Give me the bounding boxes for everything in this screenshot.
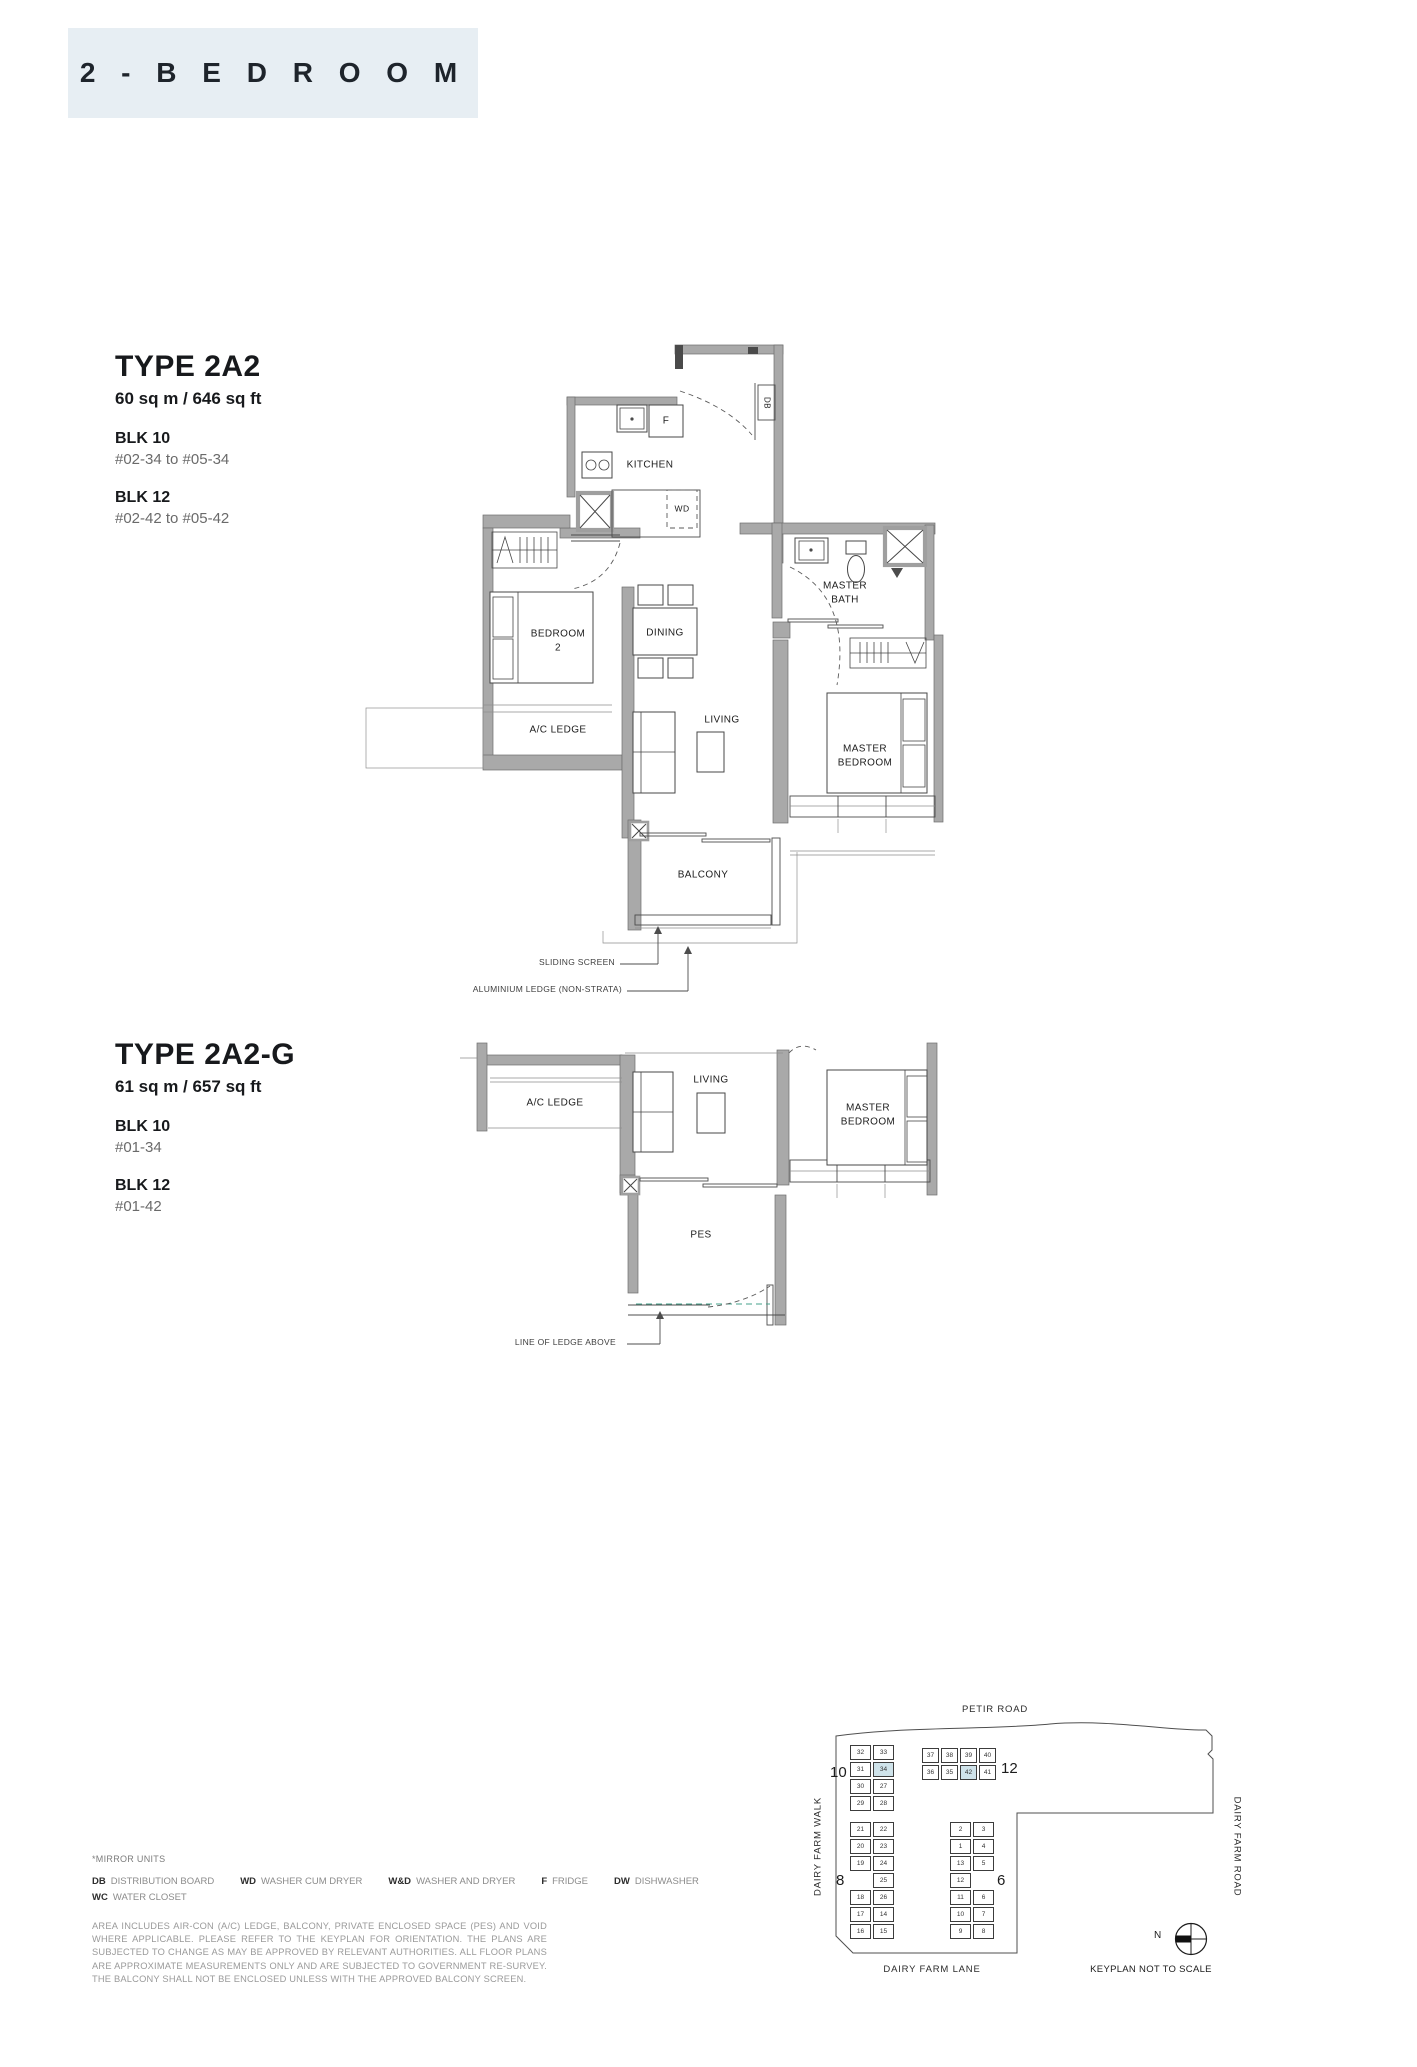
keyplan-unit-35: 35 <box>941 1765 958 1780</box>
label-master-bath: MASTER BATH <box>823 580 867 607</box>
keyplan-unit-row: 1615 <box>850 1924 894 1939</box>
keyplan-unit-16: 16 <box>850 1924 871 1939</box>
label-fridge: F <box>663 414 670 428</box>
keyplan-unit-row: 116 <box>950 1890 994 1905</box>
keyplan-unit-row: 2928 <box>850 1796 894 1811</box>
type-2a2g-info: TYPE 2A2-G 61 sq m / 657 sq ft BLK 10#01… <box>115 1040 385 1215</box>
label-master-bedroom: MASTER BEDROOM <box>838 743 892 770</box>
keyplan-unit-10: 10 <box>950 1907 971 1922</box>
type-2a2g-block-list: BLK 10#01-34BLK 12#01-42 <box>115 1118 385 1215</box>
keyplan-unit-row: 1924 <box>850 1856 894 1871</box>
keyplan-block-10-units: 3233313430272928 <box>850 1745 894 1813</box>
legend-item: DBDISTRIBUTION BOARD <box>92 1876 214 1887</box>
type-2a2g-title: TYPE 2A2-G <box>115 1040 385 1070</box>
block-unit-range: #02-34 to #05-34 <box>115 451 385 468</box>
keyplan-unit-row: 107 <box>950 1907 994 1922</box>
keyplan-unit-11: 11 <box>950 1890 971 1905</box>
keyplan-block-12-units: 3738394036354241 <box>922 1748 996 1782</box>
road-dairy-farm-walk: DAIRY FARM WALK <box>813 1787 824 1907</box>
type-2a2-info: TYPE 2A2 60 sq m / 646 sq ft BLK 10#02-3… <box>115 352 385 527</box>
keyplan-unit-4: 4 <box>973 1839 994 1854</box>
legend-item: WCWATER CLOSET <box>92 1892 187 1903</box>
legend-item: DWDISHWASHER <box>614 1876 699 1887</box>
keyplan-unit-row: 98 <box>950 1924 994 1939</box>
label-washer-dryer: WD <box>675 503 690 514</box>
keyplan-unit-23: 23 <box>873 1839 894 1854</box>
north-label: N <box>1154 1930 1161 1941</box>
keyplan-unit-2: 2 <box>950 1822 971 1837</box>
keyplan-unit-row: 1714 <box>850 1907 894 1922</box>
keyplan-unit-row: 3233 <box>850 1745 894 1760</box>
block-info: BLK 12#01-42 <box>115 1177 385 1215</box>
block-name: BLK 12 <box>115 489 385 507</box>
type-2a2-title: TYPE 2A2 <box>115 352 385 382</box>
legend-row-2: WCWATER CLOSET <box>92 1892 213 1903</box>
keyplan-block-10-label: 10 <box>830 1764 847 1781</box>
keyplan-unit-6: 6 <box>973 1890 994 1905</box>
keyplan-unit-17: 17 <box>850 1907 871 1922</box>
page-header-band: 2 - B E D R O O M <box>68 28 478 118</box>
keyplan-unit-32: 32 <box>850 1745 871 1760</box>
annotation-aluminium-ledge: ALUMINIUM LEDGE (NON-STRATA) <box>452 984 622 994</box>
keyplan-unit-5: 5 <box>973 1856 994 1871</box>
keyplan-unit-22: 22 <box>873 1822 894 1837</box>
keyplan-unit-25: 25 <box>873 1873 894 1888</box>
keyplan-unit-30: 30 <box>850 1779 871 1794</box>
keyplan-unit-28: 28 <box>873 1796 894 1811</box>
legend-item: WDWASHER CUM DRYER <box>240 1876 362 1887</box>
keyplan-unit-42: 42 <box>960 1765 977 1780</box>
plan2-annotation-leaders <box>627 1311 664 1344</box>
keyplan-unit-row: 3134 <box>850 1762 894 1777</box>
keyplan-unit-31: 31 <box>850 1762 871 1777</box>
keyplan-unit-8: 8 <box>973 1924 994 1939</box>
keyplan-unit-41: 41 <box>979 1765 996 1780</box>
keyplan-unit-40: 40 <box>979 1748 996 1763</box>
keyplan-unit-34: 34 <box>873 1762 894 1777</box>
keyplan-unit-row: 12 <box>950 1873 994 1888</box>
label-ac-ledge-g: A/C LEDGE <box>527 1096 584 1110</box>
keyplan-block-6-units: 23141351211610798 <box>950 1822 994 1941</box>
keyplan: PETIR ROAD DAIRY FARM WALK DAIRY FARM RO… <box>790 1700 1270 2010</box>
block-info: BLK 12#02-42 to #05-42 <box>115 489 385 527</box>
keyplan-block-6-label: 6 <box>997 1872 1005 1889</box>
keyplan-unit-3: 3 <box>973 1822 994 1837</box>
block-info: BLK 10#01-34 <box>115 1118 385 1156</box>
plan1-annotation-leaders <box>620 926 692 991</box>
label-living: LIVING <box>704 713 739 727</box>
annotation-line-of-ledge: LINE OF LEDGE ABOVE <box>470 1337 616 1347</box>
mirror-units-note: *MIRROR UNITS <box>92 1854 165 1864</box>
label-pes: PES <box>690 1228 711 1242</box>
keyplan-unit-21: 21 <box>850 1822 871 1837</box>
label-db: DB <box>761 397 772 409</box>
block-unit-range: #01-34 <box>115 1139 385 1156</box>
label-balcony: BALCONY <box>678 868 729 882</box>
keyplan-block-8-units: 21222023192425182617141615 <box>850 1822 894 1941</box>
road-dairy-farm-road: DAIRY FARM ROAD <box>1232 1787 1243 1907</box>
page-title: 2 - B E D R O O M <box>80 57 466 89</box>
keyplan-unit-38: 38 <box>941 1748 958 1763</box>
keyplan-unit-12: 12 <box>950 1873 971 1888</box>
block-name: BLK 10 <box>115 430 385 448</box>
floor-plan-2a2-drawing <box>360 335 970 1015</box>
keyplan-unit-13: 13 <box>950 1856 971 1871</box>
keyplan-unit-18: 18 <box>850 1890 871 1905</box>
type-2a2g-area: 61 sq m / 657 sq ft <box>115 1077 385 1097</box>
keyplan-unit-15: 15 <box>873 1924 894 1939</box>
keyplan-scale-note: KEYPLAN NOT TO SCALE <box>1086 1964 1216 1975</box>
label-kitchen: KITCHEN <box>627 458 674 472</box>
type-2a2-area: 60 sq m / 646 sq ft <box>115 389 385 409</box>
keyplan-unit-39: 39 <box>960 1748 977 1763</box>
keyplan-unit-7: 7 <box>973 1907 994 1922</box>
keyplan-unit-row: 1826 <box>850 1890 894 1905</box>
keyplan-unit-row: 135 <box>950 1856 994 1871</box>
keyplan-unit-36: 36 <box>922 1765 939 1780</box>
label-dining: DINING <box>646 626 683 640</box>
block-info: BLK 10#02-34 to #05-34 <box>115 430 385 468</box>
label-master-bedroom-g: MASTER BEDROOM <box>841 1102 895 1129</box>
keyplan-unit-26: 26 <box>873 1890 894 1905</box>
floor-plan-type-2a2: KITCHEN F WD DB BEDROOM 2 DINING A/C LED… <box>360 335 970 1015</box>
keyplan-unit-row: 25 <box>850 1873 894 1888</box>
keyplan-unit-20: 20 <box>850 1839 871 1854</box>
floor-plan-type-2a2g: A/C LEDGE LIVING MASTER BEDROOM PES <box>440 1035 960 1365</box>
label-ac-ledge: A/C LEDGE <box>530 723 587 737</box>
disclaimer-text: AREA INCLUDES AIR-CON (A/C) LEDGE, BALCO… <box>92 1920 547 1986</box>
keyplan-unit-27: 27 <box>873 1779 894 1794</box>
keyplan-unit-row: 2023 <box>850 1839 894 1854</box>
road-dairy-farm-lane: DAIRY FARM LANE <box>882 1964 982 1975</box>
north-compass-icon <box>1171 1919 1211 1959</box>
plan2-service-shafts <box>622 1177 639 1194</box>
keyplan-block-8-label: 8 <box>836 1872 844 1889</box>
block-unit-range: #01-42 <box>115 1198 385 1215</box>
block-name: BLK 10 <box>115 1118 385 1136</box>
legend-row-1: DBDISTRIBUTION BOARDWDWASHER CUM DRYERW&… <box>92 1876 732 1887</box>
keyplan-unit-row: 36354241 <box>922 1765 996 1780</box>
keyplan-unit-row: 3027 <box>850 1779 894 1794</box>
keyplan-unit-37: 37 <box>922 1748 939 1763</box>
keyplan-unit-row: 14 <box>950 1839 994 1854</box>
keyplan-unit-row: 2122 <box>850 1822 894 1837</box>
label-bedroom2: BEDROOM 2 <box>531 628 585 655</box>
legend-item: FFRIDGE <box>541 1876 588 1887</box>
floorplan-brochure-page: 2 - B E D R O O M TYPE 2A2 60 sq m / 646… <box>0 0 1417 2067</box>
keyplan-unit-29: 29 <box>850 1796 871 1811</box>
road-petir: PETIR ROAD <box>950 1704 1040 1715</box>
legend-item: W&DWASHER AND DRYER <box>388 1876 515 1887</box>
keyplan-unit-9: 9 <box>950 1924 971 1939</box>
block-unit-range: #02-42 to #05-42 <box>115 510 385 527</box>
label-living-g: LIVING <box>693 1073 728 1087</box>
block-name: BLK 12 <box>115 1177 385 1195</box>
keyplan-unit-33: 33 <box>873 1745 894 1760</box>
keyplan-unit-1: 1 <box>950 1839 971 1854</box>
annotation-sliding-screen: SLIDING SCREEN <box>450 957 615 967</box>
keyplan-block-12-label: 12 <box>1001 1760 1018 1777</box>
keyplan-unit-19: 19 <box>850 1856 871 1871</box>
keyplan-unit-row: 23 <box>950 1822 994 1837</box>
keyplan-unit-24: 24 <box>873 1856 894 1871</box>
keyplan-unit-row: 37383940 <box>922 1748 996 1763</box>
keyplan-unit-14: 14 <box>873 1907 894 1922</box>
type-2a2-block-list: BLK 10#02-34 to #05-34BLK 12#02-42 to #0… <box>115 430 385 527</box>
